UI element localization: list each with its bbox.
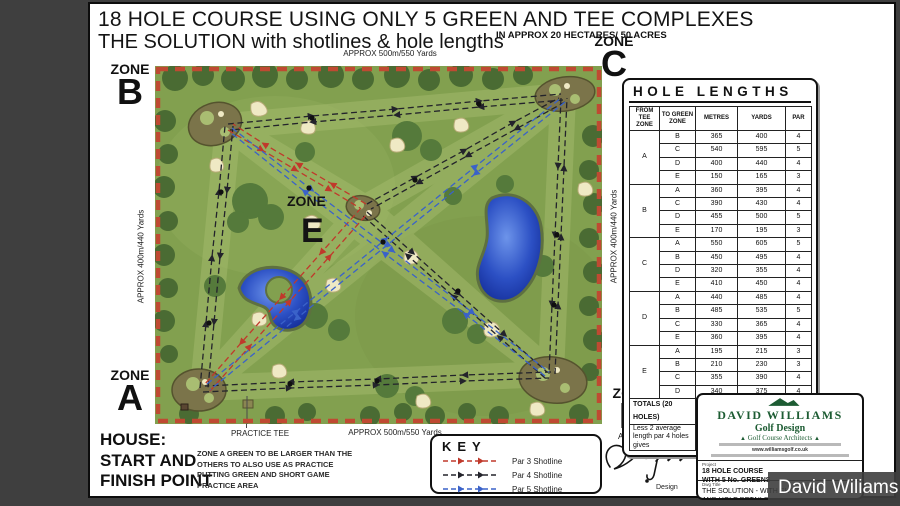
to-green-zone: C [660, 318, 696, 331]
key-box: KEY Par 3 ShotlinePar 4 ShotlinePar 5 Sh… [430, 434, 602, 494]
col-par: PAR [786, 107, 812, 131]
to-green-zone: D [660, 385, 696, 398]
to-green-zone: E [660, 171, 696, 184]
metres-value: 195 [696, 345, 738, 358]
screenshot-root: { "page": { "title_line1": "18 HOLE COUR… [0, 0, 900, 506]
table-header-row: FROM TEE ZONE TO GREEN ZONE METRES YARDS… [630, 107, 812, 131]
metres-value: 360 [696, 184, 738, 197]
to-green-zone: A [660, 184, 696, 197]
par-value: 5 [786, 238, 812, 251]
metres-value: 440 [696, 291, 738, 304]
yards-value: 195 [738, 224, 786, 237]
par-value: 4 [786, 184, 812, 197]
zone-word: ZONE [287, 193, 326, 209]
metres-value: 410 [696, 278, 738, 291]
to-green-zone: B [660, 131, 696, 144]
to-green-zone: D [660, 157, 696, 170]
yards-value: 450 [738, 278, 786, 291]
par-value: 4 [786, 372, 812, 385]
yards-value: 440 [738, 157, 786, 170]
zone-letter-e: E [301, 212, 324, 250]
par-value: 4 [786, 131, 812, 144]
par-value: 5 [786, 144, 812, 157]
zone-letter-b: B [104, 74, 156, 110]
hole-lengths-title: HOLE LENGTHS [629, 83, 811, 103]
website: www.williamsgolf.co.uk [702, 447, 858, 453]
to-green-zone: B [660, 358, 696, 371]
par-value: 4 [786, 251, 812, 264]
par-value: 3 [786, 345, 812, 358]
key-item-label: Par 3 Shotline [512, 457, 562, 466]
yards-value: 390 [738, 372, 786, 385]
to-green-zone: A [660, 345, 696, 358]
yards-value: 395 [738, 184, 786, 197]
shotline-sample-icon [442, 456, 500, 466]
yards-value: 605 [738, 238, 786, 251]
scale-label-right: APPROX 400m/440 Yards [610, 177, 619, 297]
adjusted-label: Less 2 average length par 4 holes gives [630, 424, 696, 450]
yards-value: 495 [738, 251, 786, 264]
tee-zone-letter: A [630, 131, 660, 185]
metres-value: 150 [696, 171, 738, 184]
yards-value: 500 [738, 211, 786, 224]
yards-value: 595 [738, 144, 786, 157]
key-item: Par 5 Shotline [442, 482, 592, 496]
to-green-zone: E [660, 224, 696, 237]
par-value: 4 [786, 157, 812, 170]
table-row: AB3654004 [630, 131, 812, 144]
firm-name: DAVID WILLIAMS [702, 408, 858, 423]
par-value: 5 [786, 305, 812, 318]
tee-zone-letter: D [630, 291, 660, 345]
col-to-green: TO GREEN ZONE [660, 107, 696, 131]
mountains-logo [702, 397, 858, 406]
table-row: EA1952153 [630, 345, 812, 358]
yards-value: 165 [738, 171, 786, 184]
par-value: 3 [786, 358, 812, 371]
to-green-zone: A [660, 291, 696, 304]
firm-tagline-text: Golf Course Architects [748, 434, 813, 442]
metres-value: 390 [696, 198, 738, 211]
col-from-tee: FROM TEE ZONE [630, 107, 660, 131]
table-row: BA3603954 [630, 184, 812, 197]
to-green-zone: D [660, 265, 696, 278]
metres-value: 455 [696, 211, 738, 224]
par-value: 4 [786, 198, 812, 211]
par-value: 5 [786, 211, 812, 224]
par-value: 3 [786, 224, 812, 237]
table-row: DA4404854 [630, 291, 812, 304]
drawing-sheet: 18 HOLE COURSE USING ONLY 5 GREEN AND TE… [88, 2, 896, 498]
practice-tee-pointer [246, 424, 247, 428]
yards-value: 485 [738, 291, 786, 304]
tree-icon: ▲ [814, 436, 820, 442]
scale-label-left: APPROX 400m/440 Yards [137, 197, 146, 317]
totals-label: TOTALS (20 HOLES) [630, 399, 696, 425]
col-metres: METRES [696, 107, 738, 131]
par-value: 4 [786, 318, 812, 331]
yards-value: 395 [738, 332, 786, 345]
to-green-zone: E [660, 332, 696, 345]
par-value: 3 [786, 171, 812, 184]
zone-label-b: ZONE B [104, 62, 156, 110]
yards-value: 215 [738, 345, 786, 358]
signature-design-label: Design [656, 484, 694, 491]
metres-value: 210 [696, 358, 738, 371]
to-green-zone: A [660, 238, 696, 251]
to-green-zone: E [660, 278, 696, 291]
key-title: KEY [442, 439, 592, 454]
key-item-label: Par 4 Shotline [512, 471, 562, 480]
yards-value: 230 [738, 358, 786, 371]
metres-value: 360 [696, 332, 738, 345]
to-green-zone: C [660, 198, 696, 211]
zone-letter-a: A [104, 380, 156, 416]
metres-value: 170 [696, 224, 738, 237]
yards-value: 400 [738, 131, 786, 144]
par-value: 4 [786, 291, 812, 304]
yards-value: 535 [738, 305, 786, 318]
shotline-sample-icon [442, 470, 500, 480]
zone-label-a: ZONE A [104, 368, 156, 416]
metres-value: 485 [696, 305, 738, 318]
tee-zone-letter: C [630, 238, 660, 292]
to-green-zone: D [660, 211, 696, 224]
practice-tee-pad [243, 400, 253, 408]
contact-line [711, 454, 848, 457]
metres-value: 330 [696, 318, 738, 331]
yards-value: 430 [738, 198, 786, 211]
table-row: CA5506055 [630, 238, 812, 251]
zone-a-green-note: ZONE A GREEN TO BE LARGER THAN THE OTHER… [197, 449, 355, 491]
to-green-zone: B [660, 251, 696, 264]
metres-value: 450 [696, 251, 738, 264]
shotline-sample-icon [442, 484, 500, 494]
watermark-label: David Wiliams [768, 472, 900, 503]
course-map: ZONE E [155, 66, 602, 424]
tee-zone-letter: B [630, 184, 660, 238]
metres-value: 365 [696, 131, 738, 144]
house-line-1: HOUSE: [100, 430, 212, 451]
metres-value: 540 [696, 144, 738, 157]
par-value: 4 [786, 265, 812, 278]
page-title: 18 HOLE COURSE USING ONLY 5 GREEN AND TE… [98, 8, 754, 32]
scale-label-top: APPROX 500m/550 Yards [290, 49, 490, 58]
to-green-zone: B [660, 305, 696, 318]
metres-value: 550 [696, 238, 738, 251]
practice-tee-label: PRACTICE TEE [215, 429, 305, 438]
tee-zone-letter: E [630, 345, 660, 399]
key-item: Par 4 Shotline [442, 468, 592, 482]
house-note: HOUSE: START AND FINISH POINT [100, 430, 212, 492]
firm-subtitle: Golf Design [702, 423, 858, 434]
key-item-label: Par 5 Shotline [512, 485, 562, 494]
col-yards: YARDS [738, 107, 786, 131]
tree-icon: ▲ [740, 436, 746, 442]
house-line-2: START AND [100, 451, 212, 472]
yards-value: 355 [738, 265, 786, 278]
address-line [719, 443, 841, 446]
yards-value: 365 [738, 318, 786, 331]
to-green-zone: C [660, 144, 696, 157]
to-green-zone: C [660, 372, 696, 385]
metres-value: 320 [696, 265, 738, 278]
key-item: Par 3 Shotline [442, 454, 592, 468]
par-value: 4 [786, 332, 812, 345]
firm-tagline: ▲ Golf Course Architects ▲ [702, 434, 858, 442]
house-line-3: FINISH POINT [100, 471, 212, 492]
metres-value: 355 [696, 372, 738, 385]
par-value: 4 [786, 278, 812, 291]
metres-value: 400 [696, 157, 738, 170]
key-items: Par 3 ShotlinePar 4 ShotlinePar 5 Shotli… [442, 454, 592, 496]
